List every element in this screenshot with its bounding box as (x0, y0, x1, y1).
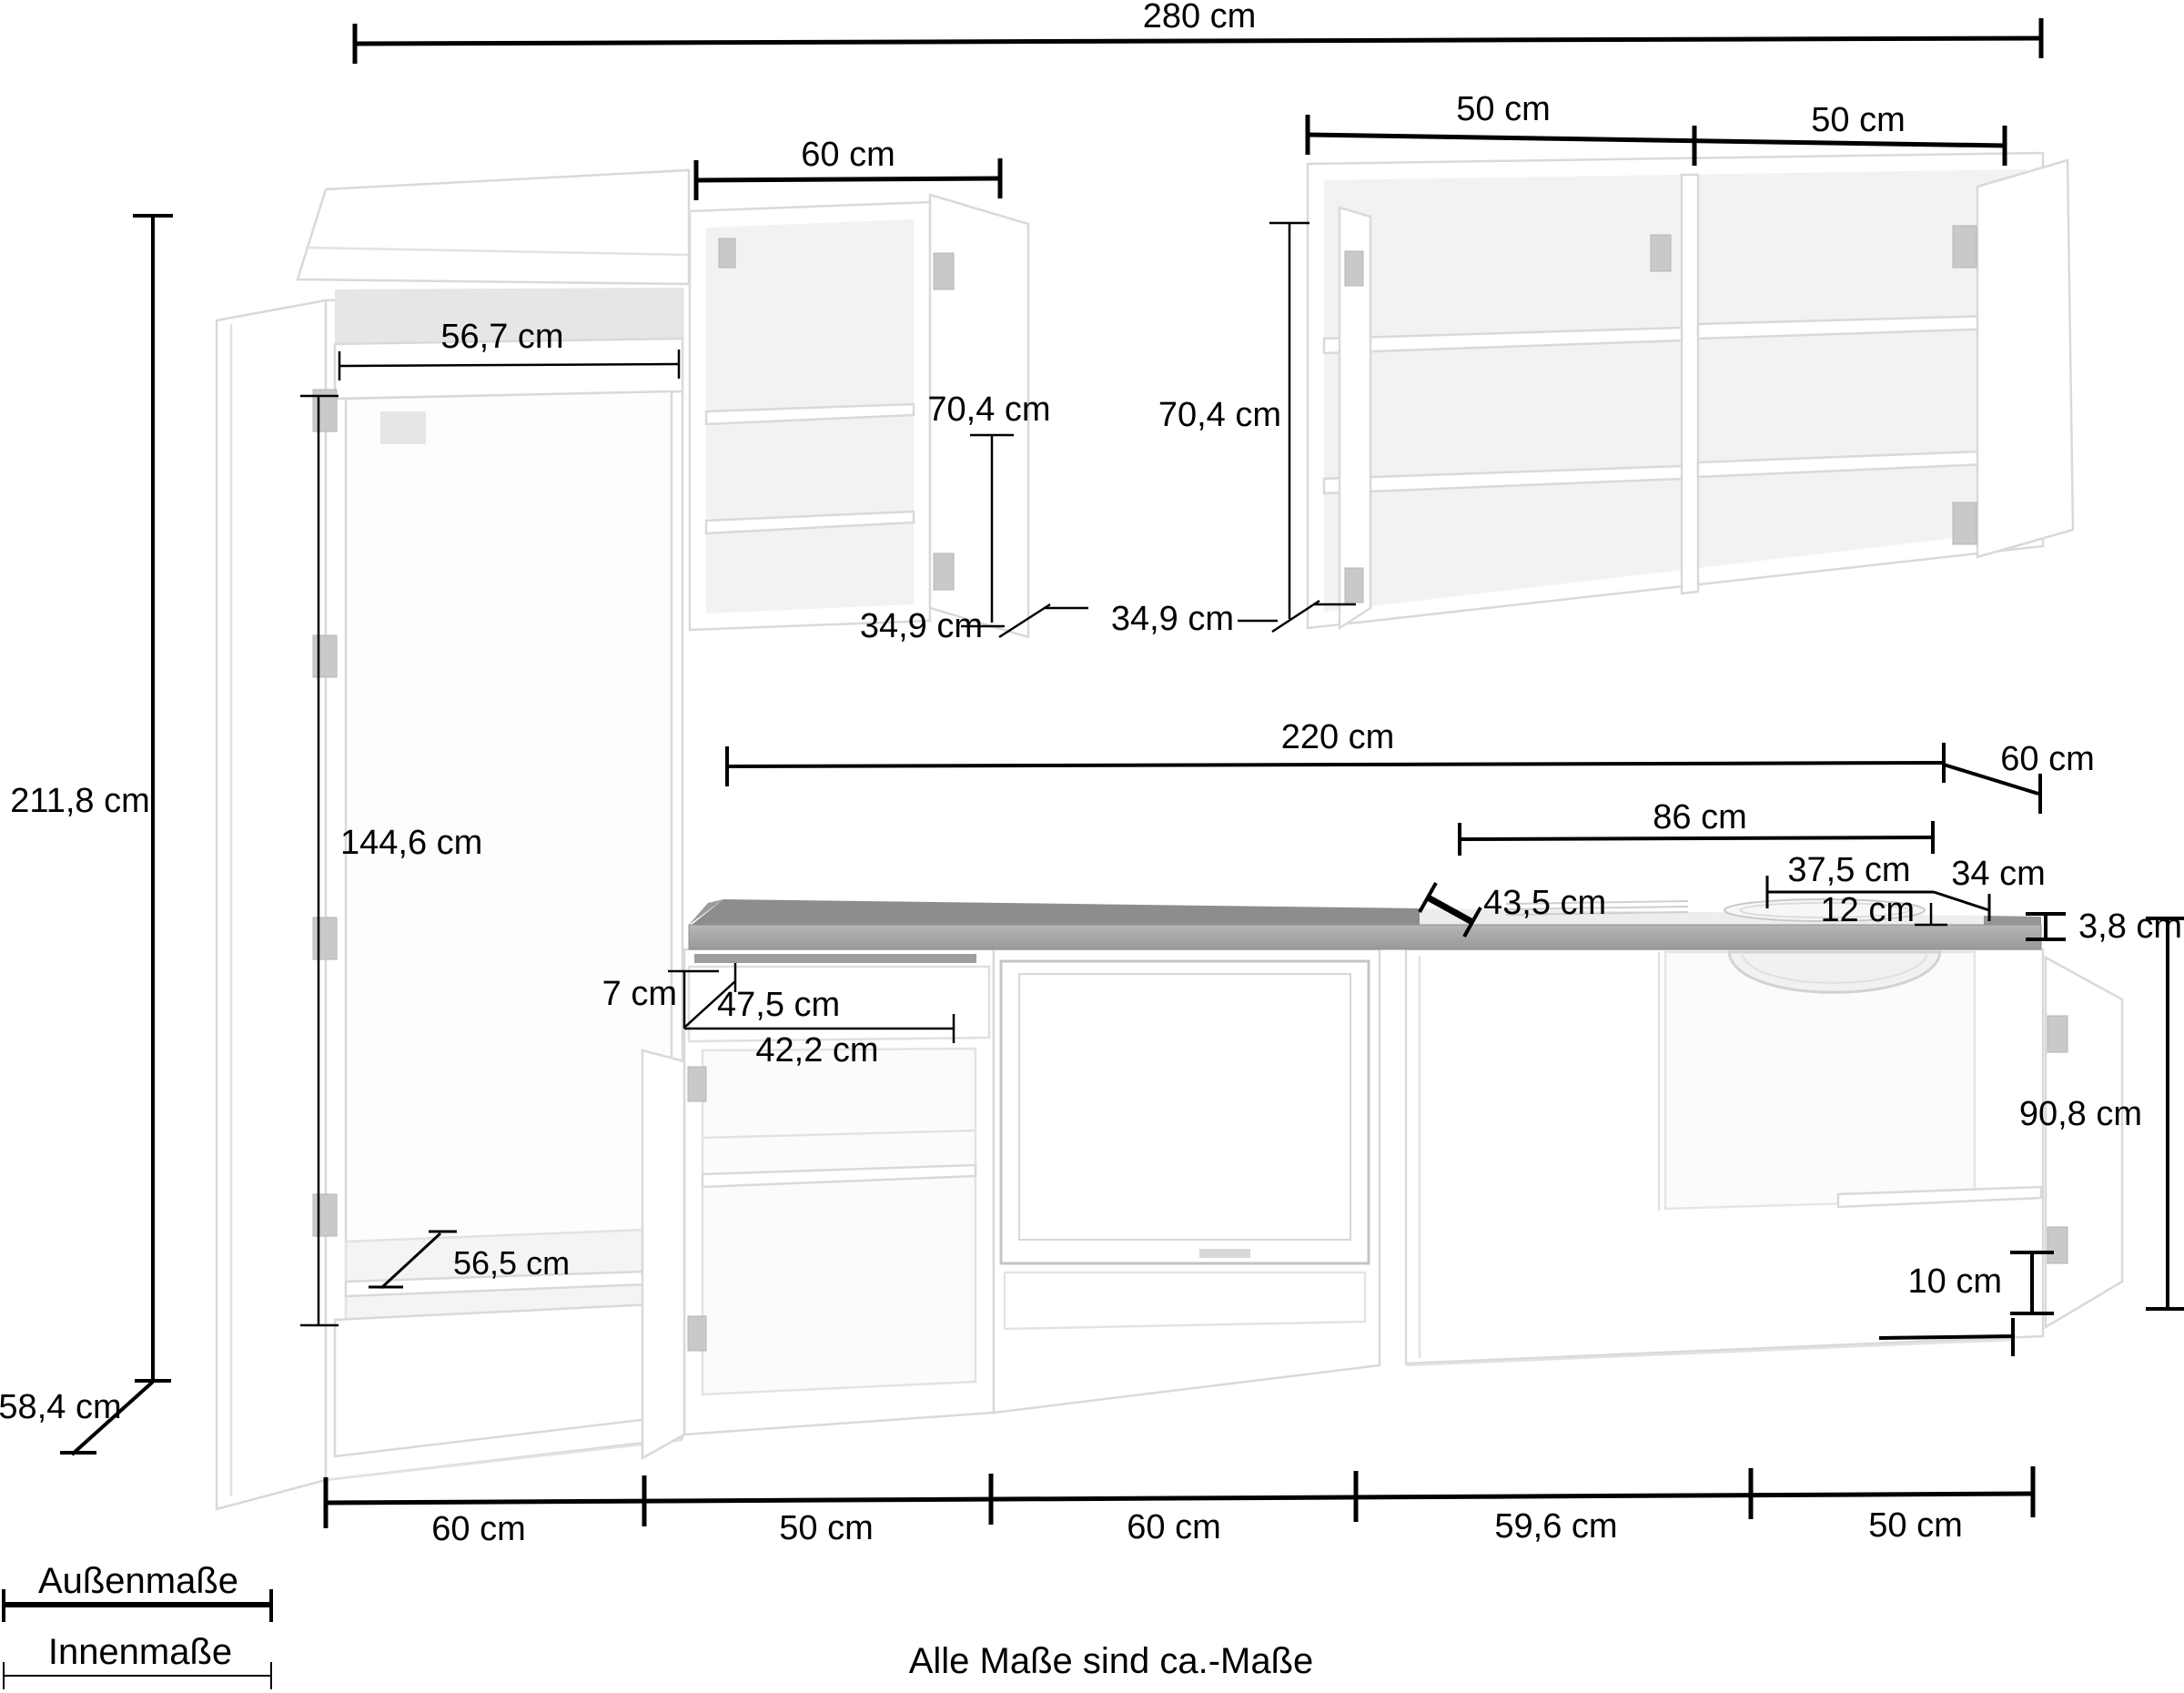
dim-total-depth: 58,4 cm (0, 1382, 153, 1455)
wall-right-door-hinge-bottom (1953, 502, 1977, 544)
legend-outer-label: Außenmaße (38, 1561, 238, 1601)
base-right-hinge-bottom (2047, 1227, 2068, 1263)
mounting-bracket (380, 411, 426, 444)
legend: Außenmaße Innenmaße (4, 1561, 271, 1689)
wall-cabinet-left-door-hinge-top (934, 253, 954, 289)
dim-wall-right-inner-depth-label: 34,9 cm (1111, 600, 1234, 638)
wall-right-hinge-2 (1345, 568, 1363, 603)
dim-base-width-5-label: 50 cm (1868, 1506, 1962, 1545)
fridge-cavity (346, 391, 672, 1242)
dim-hob-width-label: 86 cm (1653, 798, 1746, 836)
dim-worktop-depth: 60 cm (1944, 740, 2095, 814)
dim-wall-left-width-label: 60 cm (801, 136, 895, 174)
dim-total-width-label: 280 cm (1143, 0, 1257, 35)
dim-worktop-width-label: 220 cm (1281, 718, 1395, 756)
dim-wall-right-inner-height-label: 70,4 cm (1158, 396, 1281, 434)
footer-note: Alle Maße sind ca.-Maße (909, 1641, 1314, 1681)
dim-wall-right-width-2-label: 50 cm (1811, 101, 1905, 139)
dim-wall-right-inner-height: 70,4 cm (1158, 223, 1309, 619)
dim-hob-width: 86 cm (1460, 798, 1933, 856)
base-right-hinge-top (2047, 1016, 2068, 1052)
dim-sink-width-label: 37,5 cm (1787, 851, 1910, 889)
worktop-right-surface (1984, 916, 2041, 925)
handle-groove-strip (694, 954, 976, 963)
dim-base-width-4-label: 59,6 cm (1494, 1507, 1617, 1546)
dim-wall-right-width-1-label: 50 cm (1456, 90, 1550, 128)
dim-drawer-height-label: 7 cm (602, 975, 677, 1013)
dim-total-width: 280 cm (355, 0, 2041, 64)
oven-drawer-front (1005, 1272, 1365, 1329)
dimension-diagram: 280 cm 60 cm 50 cm 50 cm 56,7 cm 70,4 cm… (0, 0, 2184, 1693)
wall-right-hinge-1 (1345, 251, 1363, 286)
dim-wall-left-inner-depth: 34,9 cm (860, 604, 1088, 645)
base-cabinet-50-door (642, 1050, 684, 1458)
dim-base-inner-height-label: 90,8 cm (2019, 1095, 2142, 1133)
dim-sink-depth-label: 34 cm (1951, 855, 2045, 893)
wall-cabinet-left-hardware (719, 238, 735, 268)
kitchen-dimension-drawing: 280 cm 60 cm 50 cm 50 cm 56,7 cm 70,4 cm… (0, 0, 2184, 1693)
tall-cabinet-crown-panel (298, 170, 689, 284)
base-50-hinge-bottom (688, 1316, 706, 1351)
dim-drawer-inner-width-label: 42,2 cm (755, 1031, 878, 1070)
dim-sink-depth: 34 cm (1951, 855, 2045, 921)
dim-base-width-3-label: 60 cm (1127, 1508, 1220, 1546)
dim-total-height-label: 211,8 cm (10, 782, 149, 820)
dim-shelf-depth-label: 56,5 cm (453, 1244, 570, 1282)
dim-hob-depth-label: 43,5 cm (1483, 884, 1606, 922)
dim-wall-left-inner-height-label: 70,4 cm (927, 390, 1050, 429)
dim-sink-inner-depth-label: 12 cm (1821, 891, 1915, 929)
base-cabinet-50-interior (703, 1049, 976, 1394)
dim-base-widths: 60 cm 50 cm 60 cm 59,6 cm 50 cm (326, 1466, 2033, 1548)
worktop-hob-surface (692, 899, 1420, 925)
legend-inner-label: Innenmaße (48, 1632, 232, 1672)
dim-base-width-2-label: 50 cm (779, 1509, 873, 1547)
base-50-hinge-top (688, 1067, 706, 1101)
dim-wall-cabinet-left-width: 60 cm (696, 136, 1000, 200)
dim-worktop-width: 220 cm (727, 718, 1944, 786)
dim-total-depth-label: 58,4 cm (0, 1388, 122, 1426)
furniture-drawing (217, 153, 2122, 1509)
dim-base-width-1-label: 60 cm (431, 1510, 525, 1548)
wall-cabinet-left-door-hinge-bottom (934, 553, 954, 590)
dim-total-height: 211,8 cm (10, 216, 173, 1382)
wall-cabinet-right-divider (1682, 175, 1698, 593)
dim-drawer-diagonal-label: 47,5 cm (717, 986, 840, 1024)
oven-cavity (1019, 974, 1350, 1240)
oven-logo-mark (1199, 1249, 1250, 1258)
dim-worktop-thickness: 3,8 cm (2026, 907, 2182, 946)
dim-wall-left-inner-depth-label: 34,9 cm (860, 607, 983, 645)
base-right-door-open (2046, 958, 2122, 1327)
dim-tall-inner-height-label: 144,6 cm (340, 824, 482, 862)
wall-right-hinge-center (1651, 235, 1671, 271)
dim-worktop-depth-label: 60 cm (2000, 740, 2094, 778)
dim-tall-inner-width-label: 56,7 cm (440, 318, 563, 356)
dim-plinth-height-label: 10 cm (1908, 1262, 2002, 1301)
tall-cabinet-door (217, 300, 326, 1509)
wall-cabinet-right-door-open (1977, 160, 2073, 557)
wall-right-door-hinge-top (1953, 226, 1977, 268)
